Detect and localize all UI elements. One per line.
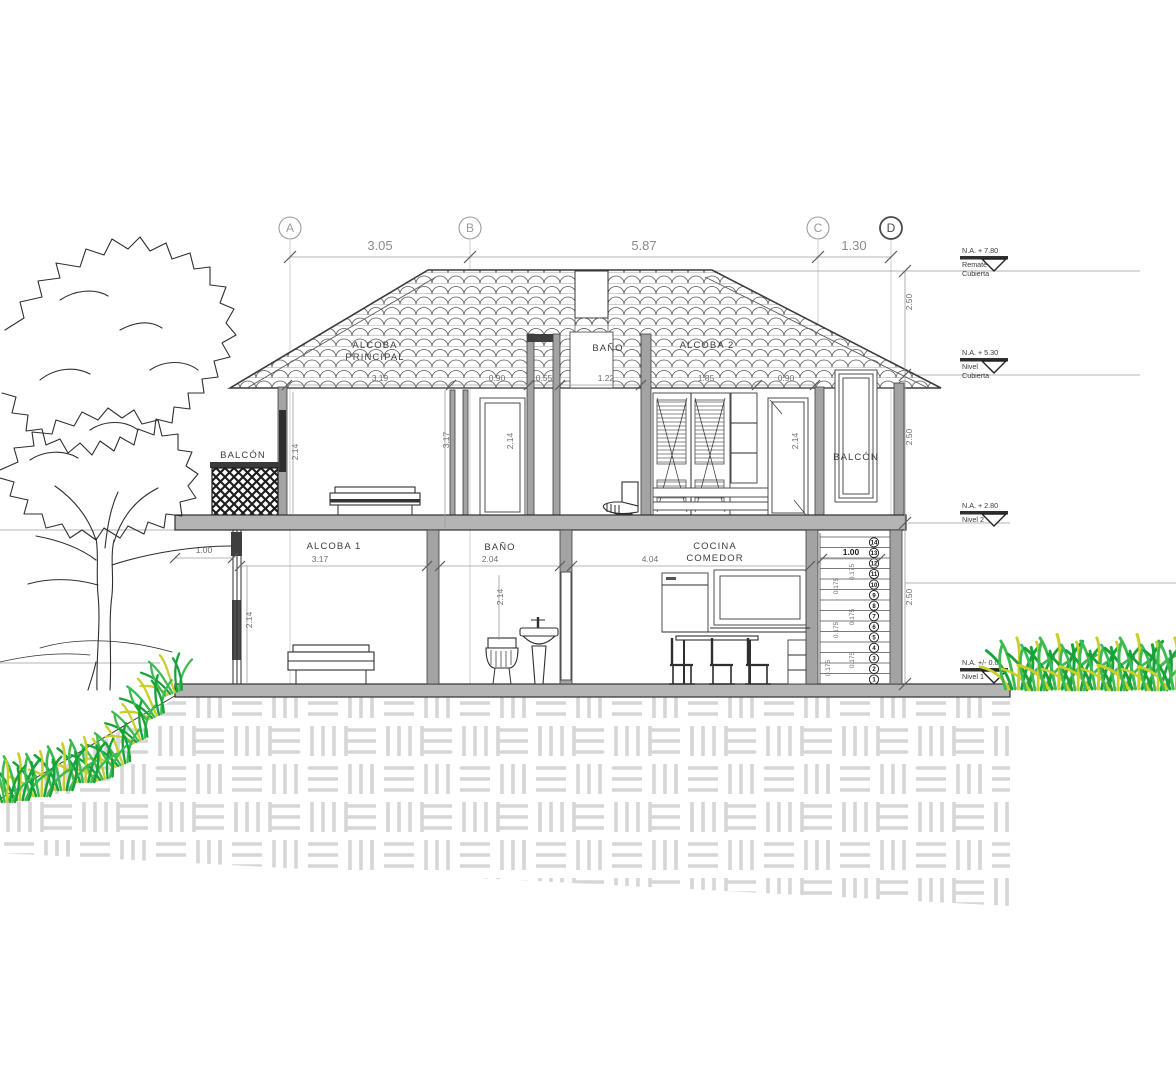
dim-b-c: 5.87	[631, 238, 656, 253]
stair-step-number: 14	[871, 541, 878, 547]
balcony-right-door: BALCÓN	[833, 370, 879, 502]
level-elev: N.A. + 7.80	[962, 246, 998, 255]
door-bano1	[560, 530, 572, 684]
riser-dim: 0.175	[849, 608, 856, 625]
wall-stud-2	[463, 390, 468, 517]
chair-1	[669, 638, 695, 684]
right-h-dim-1: 2.50	[904, 293, 914, 310]
balcony-left: BALCÓN	[210, 450, 280, 517]
level-elev: N.A. + 2.80	[962, 501, 998, 510]
roof	[230, 270, 941, 388]
ground	[0, 688, 1176, 906]
balcony-lattice	[212, 468, 278, 517]
wall-stud-1	[450, 390, 455, 517]
sink-bano1	[520, 617, 558, 684]
bed-alcoba-principal	[330, 487, 420, 515]
bed-alcoba1	[288, 645, 374, 684]
riser-dim: 0.175	[833, 577, 840, 594]
h-dim-1: 2.14	[290, 443, 300, 460]
lower-dim-1: 3.17	[312, 554, 329, 564]
level-marker-remate: N.A. + 7.80 Remate Cubierta	[960, 246, 1008, 278]
stair-step-number: 11	[871, 572, 878, 578]
h-dim-2: 3.17	[441, 431, 451, 448]
alcoba-principal-label-1: ALCOBA	[352, 340, 397, 351]
section-drawing: A B C D 3.05 5.87 1.30	[0, 0, 1176, 1066]
level-name: Cubierta	[962, 269, 989, 278]
stair-step-number: 13	[871, 551, 878, 557]
level-elev: N.A. + 5.30	[962, 348, 998, 357]
wall-shaft-left	[527, 334, 534, 517]
riser-dim: 0.175	[849, 563, 856, 580]
upper-dim-2: 0.90	[489, 373, 506, 383]
riser-dim: 0.175	[825, 659, 832, 676]
lower-dim-2: 2.04	[482, 554, 499, 564]
stair-step-number: 10	[871, 583, 878, 589]
h-dim-4: 2.14	[790, 432, 800, 449]
roof-dormer	[570, 271, 613, 388]
tree	[0, 237, 236, 690]
right-h-dim-3: 2.50	[904, 588, 914, 605]
riser-dim: 0.175	[833, 621, 840, 638]
upper-dim-4: 1.22	[598, 373, 615, 383]
stair-width-dim: 1.00	[843, 547, 860, 557]
upper-dim-5: 1.85	[698, 373, 715, 383]
level-name: Remate	[962, 260, 987, 269]
balcon-right-label: BALCÓN	[833, 452, 879, 463]
cocina-label-2: COMEDOR	[686, 553, 743, 564]
kitchen-dining	[662, 570, 810, 684]
toilet-bano2	[603, 482, 638, 518]
level-name: Nivel 1	[962, 672, 984, 681]
door-alcoba2-right	[768, 398, 808, 517]
closet-alcoba2	[653, 393, 757, 517]
slab-level1	[175, 684, 1010, 697]
alcoba1-label: ALCOBA 1	[307, 541, 362, 552]
axis-label-c: C	[814, 221, 823, 235]
bano2-label: BAÑO	[592, 343, 623, 354]
balcon-left-label: BALCÓN	[220, 450, 266, 461]
axis-label-b: B	[466, 221, 474, 235]
wall-alcoba1-right	[427, 530, 439, 684]
wall-right-exterior-l1	[890, 530, 902, 684]
tree-trunk	[96, 538, 99, 690]
h-dim-6: 2.14	[495, 588, 505, 605]
shelf-unit	[788, 640, 806, 684]
level-name: Nivel 2	[962, 515, 984, 524]
upper-dim-1: 3.19	[372, 373, 389, 383]
wall-bano2-right	[641, 334, 651, 517]
shaft-header	[527, 334, 553, 342]
chair-2	[709, 638, 735, 684]
lower-floor: ALCOBA 1 BAÑO COCINA COMEDOR	[231, 530, 902, 684]
balcony-post	[231, 530, 242, 684]
stairs: 1234567891011121314 0.175 0.175 0.175 0.…	[817, 533, 890, 684]
toilet-bano1	[486, 638, 518, 684]
alcoba2-label: ALCOBA 2	[680, 340, 735, 351]
h-dim-3: 2.14	[505, 432, 515, 449]
wall-shaft-right	[553, 334, 560, 517]
window-left-l2	[279, 410, 286, 472]
dim-a-b: 3.05	[367, 238, 392, 253]
right-h-dim-2: 2.50	[904, 428, 914, 445]
chair-3	[745, 638, 771, 684]
bano1-label: BAÑO	[484, 542, 515, 553]
level-markers: N.A. + 7.80 Remate Cubierta N.A. + 5.30 …	[960, 246, 1008, 683]
dining-table	[676, 636, 758, 684]
fridge	[662, 573, 708, 632]
door-alcoba-principal	[480, 398, 525, 517]
lower-dim-3: 4.04	[642, 554, 659, 564]
wall-right-exterior-l2	[894, 383, 904, 517]
riser-dim: 0.175	[849, 651, 856, 668]
level-name: Cubierta	[962, 371, 989, 380]
level-name: Nivel	[962, 362, 978, 371]
wall-stair	[806, 530, 818, 684]
h-dim-5: 2.14	[244, 611, 254, 628]
upper-dim-6: 0.90	[778, 373, 795, 383]
axis-label-a: A	[286, 221, 294, 235]
stair-riser-dims: 0.175 0.175 0.175 0.175 0.175 0.175	[825, 563, 856, 676]
cocina-label-1: COCINA	[693, 541, 737, 552]
upper-dim-3: 0.55	[536, 373, 553, 383]
alcoba-principal-label-2: PRINCIPAL	[345, 352, 404, 363]
ground-hatch	[0, 697, 1010, 906]
wall-alcoba2-right	[815, 387, 824, 517]
level-marker-nivel2: N.A. + 2.80 Nivel 2	[960, 501, 1008, 526]
axis-label-d: D	[887, 221, 896, 235]
slab-level2	[175, 515, 906, 530]
dim-c-d: 1.30	[841, 238, 866, 253]
